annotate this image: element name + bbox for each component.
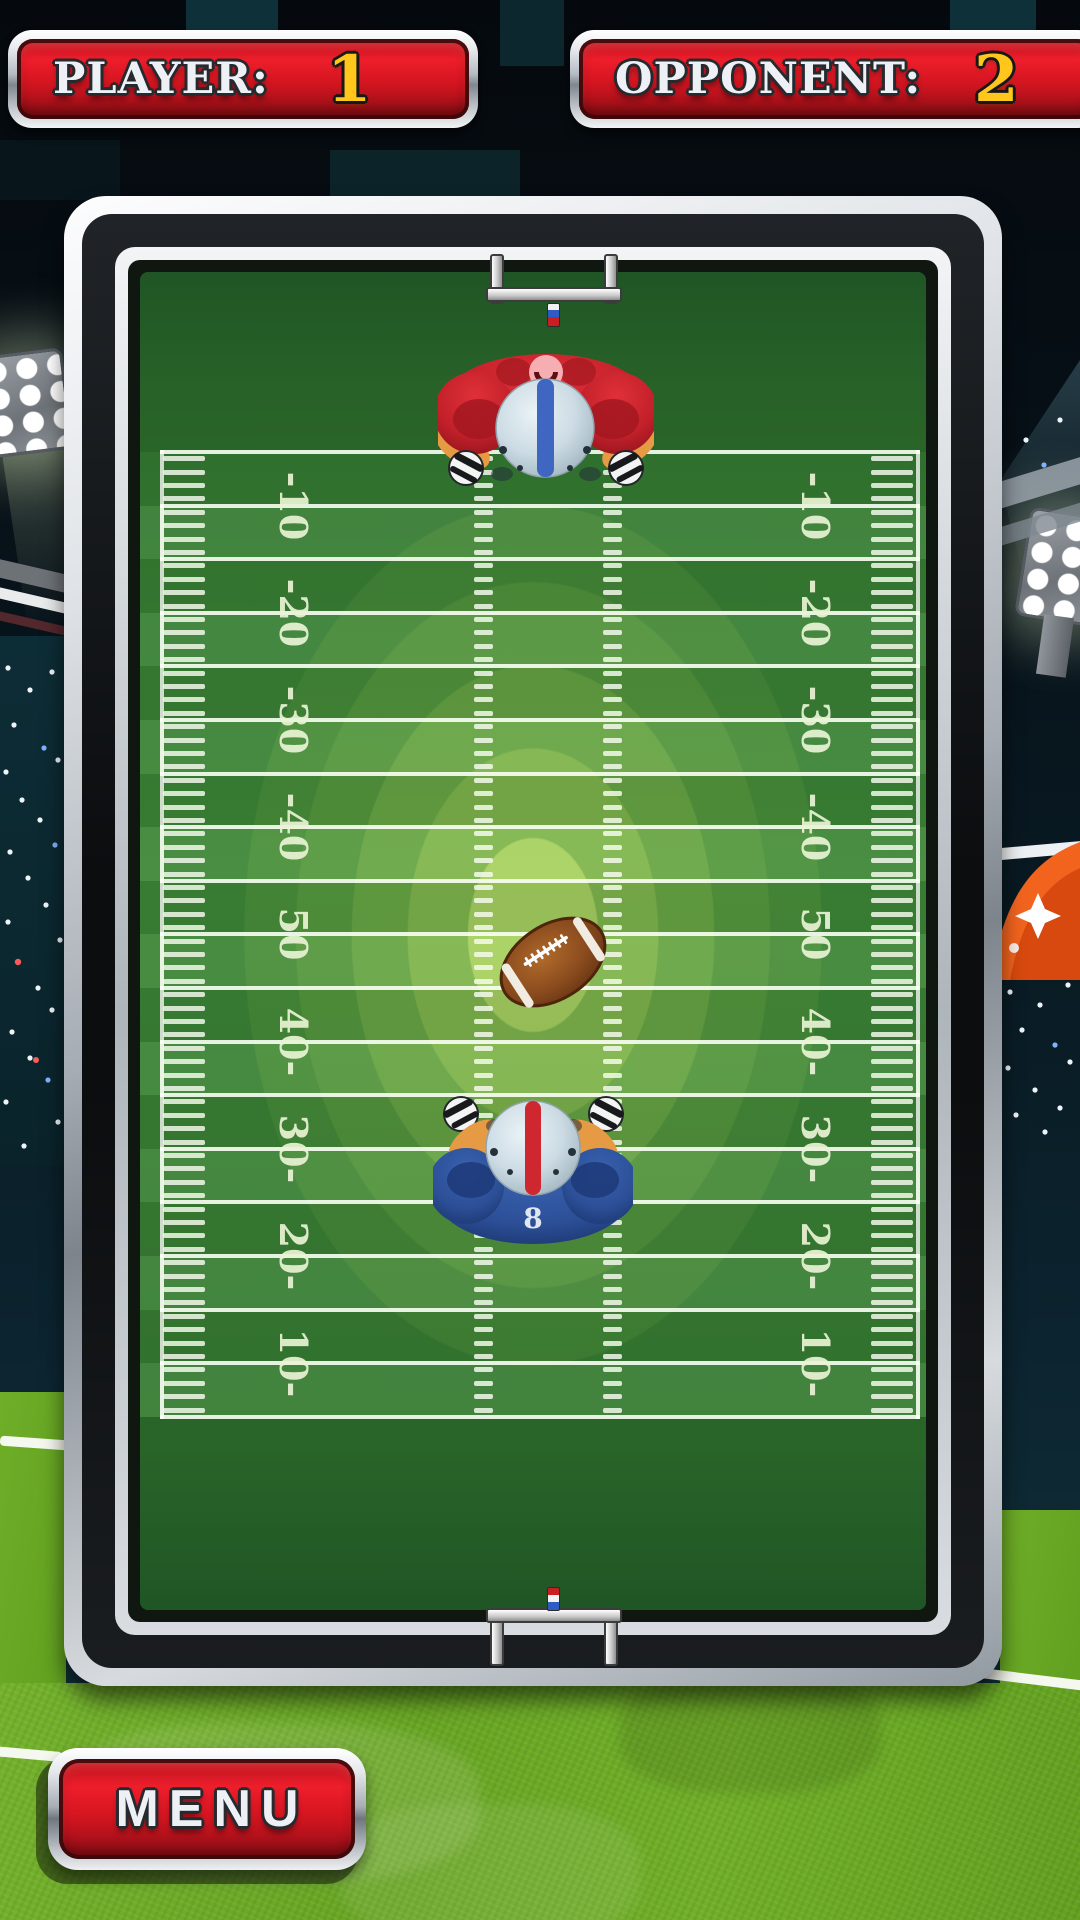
hash-mark xyxy=(603,671,622,676)
hash-mark xyxy=(163,1140,205,1145)
hash-mark xyxy=(603,590,622,595)
hash-mark xyxy=(163,1086,205,1091)
side-grass-right xyxy=(1000,1510,1080,1690)
hash-mark xyxy=(871,550,913,555)
hash-mark xyxy=(603,577,622,582)
hash-mark xyxy=(474,711,493,716)
hash-mark xyxy=(871,1381,913,1386)
hash-mark xyxy=(603,1394,622,1399)
hash-mark xyxy=(474,1394,493,1399)
hash-mark xyxy=(871,483,913,488)
hash-mark xyxy=(871,671,913,676)
hash-mark xyxy=(871,1113,913,1118)
hash-mark xyxy=(871,1153,913,1158)
hash-mark xyxy=(163,1193,205,1198)
hash-mark xyxy=(871,898,913,903)
hash-mark xyxy=(163,1220,205,1225)
hash-mark xyxy=(871,912,913,917)
hash-mark xyxy=(603,496,622,501)
hash-mark xyxy=(474,604,493,609)
hash-mark xyxy=(603,1341,622,1346)
hash-mark xyxy=(474,630,493,635)
hash-mark xyxy=(163,1300,205,1305)
hash-mark xyxy=(603,858,622,863)
hash-mark xyxy=(871,818,913,823)
hash-mark xyxy=(163,1006,205,1011)
hash-mark xyxy=(163,563,205,568)
hash-mark xyxy=(871,604,913,609)
hash-mark xyxy=(871,858,913,863)
hash-mark xyxy=(474,523,493,528)
hash-mark xyxy=(871,1233,913,1238)
hash-mark xyxy=(871,751,913,756)
hash-mark xyxy=(871,577,913,582)
hash-mark xyxy=(871,1140,913,1145)
hash-mark xyxy=(871,831,913,836)
hash-mark xyxy=(163,872,205,877)
hash-mark xyxy=(871,992,913,997)
goal-marker-bottom xyxy=(547,1587,560,1611)
hash-mark xyxy=(871,925,913,930)
hash-mark xyxy=(163,979,205,984)
player-score-value: 1 xyxy=(327,39,372,119)
hash-mark xyxy=(163,1046,205,1051)
hash-mark xyxy=(163,684,205,689)
hash-mark xyxy=(871,1408,913,1413)
hash-mark xyxy=(163,912,205,917)
hash-mark xyxy=(163,496,205,501)
hash-mark xyxy=(163,724,205,729)
hash-mark xyxy=(871,470,913,475)
hash-mark xyxy=(474,1032,493,1037)
hash-mark xyxy=(871,523,913,528)
hash-mark xyxy=(163,1166,205,1171)
hash-mark xyxy=(603,523,622,528)
hash-mark xyxy=(871,1193,913,1198)
hash-mark xyxy=(871,1166,913,1171)
menu-button[interactable]: MENU xyxy=(48,1748,366,1870)
hash-mark xyxy=(871,1314,913,1319)
hash-mark xyxy=(871,979,913,984)
hash-mark xyxy=(603,764,622,769)
hash-mark xyxy=(871,885,913,890)
hash-mark xyxy=(163,1327,205,1332)
hash-mark xyxy=(603,805,622,810)
opponent-player xyxy=(438,295,654,487)
hash-mark xyxy=(163,1367,205,1372)
hash-mark xyxy=(871,1086,913,1091)
hash-mark xyxy=(871,1327,913,1332)
hash-mark xyxy=(871,778,913,783)
opponent-label: OPPONENT: xyxy=(615,39,921,119)
hash-mark xyxy=(474,791,493,796)
hash-mark xyxy=(163,965,205,970)
stadium-banner xyxy=(500,0,564,66)
hash-mark xyxy=(163,764,205,769)
hash-mark xyxy=(474,1046,493,1051)
hash-mark xyxy=(474,1381,493,1386)
hash-mark xyxy=(603,724,622,729)
hash-mark xyxy=(871,845,913,850)
hash-mark xyxy=(871,456,913,461)
hash-mark xyxy=(163,898,205,903)
hash-mark xyxy=(163,1260,205,1265)
hash-mark xyxy=(474,563,493,568)
hash-mark xyxy=(163,590,205,595)
hash-mark xyxy=(603,563,622,568)
user-player[interactable]: 8 xyxy=(433,1082,633,1252)
hash-mark xyxy=(871,738,913,743)
hash-mark xyxy=(163,858,205,863)
hash-mark xyxy=(163,1354,205,1359)
hash-mark xyxy=(474,537,493,542)
hash-mark xyxy=(603,1300,622,1305)
hash-mark xyxy=(871,1073,913,1078)
user-jersey-number: 8 xyxy=(523,1202,542,1235)
hash-mark xyxy=(871,644,913,649)
hash-mark xyxy=(474,831,493,836)
football-ball xyxy=(486,898,622,1026)
hash-mark xyxy=(871,872,913,877)
hash-mark xyxy=(163,1341,205,1346)
hash-mark xyxy=(474,697,493,702)
hash-mark xyxy=(163,1099,205,1104)
hash-mark xyxy=(474,845,493,850)
hash-mark xyxy=(163,939,205,944)
player-score-panel-face: PLAYER: 1 xyxy=(17,39,469,119)
hash-mark xyxy=(474,724,493,729)
hash-mark xyxy=(871,537,913,542)
hash-mark xyxy=(163,1408,205,1413)
hash-mark xyxy=(871,1006,913,1011)
hash-mark xyxy=(474,510,493,515)
hash-mark xyxy=(163,1247,205,1252)
hash-mark xyxy=(163,483,205,488)
game-screen: -10-20-30-405040-30-20-10--10-20-30-4050… xyxy=(0,0,1080,1920)
hash-mark xyxy=(871,697,913,702)
hash-mark xyxy=(163,604,205,609)
hash-mark xyxy=(163,791,205,796)
hash-mark xyxy=(871,1059,913,1064)
hash-mark xyxy=(163,751,205,756)
hash-mark xyxy=(163,885,205,890)
hash-mark xyxy=(474,1260,493,1265)
hash-mark xyxy=(474,657,493,662)
hash-mark xyxy=(474,1354,493,1359)
hash-mark xyxy=(474,858,493,863)
hash-mark xyxy=(603,537,622,542)
hash-mark xyxy=(871,724,913,729)
hash-mark xyxy=(474,684,493,689)
hash-mark xyxy=(603,818,622,823)
hash-mark xyxy=(474,1367,493,1372)
hash-mark xyxy=(603,644,622,649)
hash-mark xyxy=(603,510,622,515)
hash-mark xyxy=(474,1300,493,1305)
hash-mark xyxy=(474,1408,493,1413)
background-mascot xyxy=(990,830,1080,980)
player-label: PLAYER: xyxy=(53,39,269,119)
menu-button-face: MENU xyxy=(59,1759,355,1859)
hash-mark xyxy=(474,805,493,810)
hash-mark xyxy=(603,1381,622,1386)
hash-mark xyxy=(163,577,205,582)
hash-mark xyxy=(163,1126,205,1131)
hash-mark xyxy=(163,831,205,836)
menu-button-label: MENU xyxy=(105,1779,308,1839)
hash-mark xyxy=(603,630,622,635)
hash-mark xyxy=(871,1394,913,1399)
hash-mark xyxy=(603,604,622,609)
hash-mark xyxy=(163,818,205,823)
hash-mark xyxy=(163,1381,205,1386)
hash-mark xyxy=(603,738,622,743)
hash-mark xyxy=(871,657,913,662)
opponent-score-panel-face: OPPONENT: 2 xyxy=(579,39,1080,119)
crowd-right xyxy=(1000,0,1080,1200)
hash-mark xyxy=(163,510,205,515)
hash-mark xyxy=(871,711,913,716)
hash-mark xyxy=(871,1274,913,1279)
opponent-glove-right xyxy=(607,451,645,485)
hash-mark xyxy=(871,1354,913,1359)
hash-mark xyxy=(603,1032,622,1037)
hash-mark xyxy=(163,1394,205,1399)
hash-mark xyxy=(163,644,205,649)
hash-mark xyxy=(474,496,493,501)
hash-mark xyxy=(871,791,913,796)
hash-mark xyxy=(871,1019,913,1024)
hash-mark xyxy=(163,523,205,528)
hash-mark xyxy=(474,778,493,783)
stadium-banner xyxy=(330,150,520,198)
hash-mark xyxy=(871,496,913,501)
hash-mark xyxy=(871,1341,913,1346)
hash-mark xyxy=(163,1207,205,1212)
hash-mark xyxy=(871,617,913,622)
endzone-bottom xyxy=(140,1417,926,1610)
hash-mark xyxy=(163,1180,205,1185)
hash-mark xyxy=(871,1247,913,1252)
yard-number: 10- xyxy=(271,1293,315,1433)
hash-mark xyxy=(871,1180,913,1185)
hash-mark xyxy=(871,1300,913,1305)
hash-mark xyxy=(603,1354,622,1359)
hash-mark xyxy=(603,1274,622,1279)
hash-mark xyxy=(603,1408,622,1413)
grass-patch xyxy=(620,1673,880,1793)
hash-mark xyxy=(871,590,913,595)
hash-mark xyxy=(871,1220,913,1225)
hash-mark xyxy=(163,845,205,850)
opponent-helmet-stripe xyxy=(537,379,554,477)
hash-mark xyxy=(163,630,205,635)
hash-mark xyxy=(603,1314,622,1319)
hash-mark xyxy=(474,590,493,595)
hash-mark xyxy=(163,711,205,716)
hash-mark xyxy=(474,1073,493,1078)
grass-patch xyxy=(340,1803,640,1920)
hash-mark xyxy=(163,1073,205,1078)
hash-mark xyxy=(474,644,493,649)
hash-mark xyxy=(163,778,205,783)
hash-mark xyxy=(163,1287,205,1292)
hash-mark xyxy=(603,617,622,622)
hash-mark xyxy=(474,872,493,877)
player-score-panel: PLAYER: 1 xyxy=(8,30,478,128)
hash-mark xyxy=(603,711,622,716)
hash-mark xyxy=(474,764,493,769)
hash-mark xyxy=(163,952,205,957)
opponent-score-value: 2 xyxy=(974,39,1019,119)
hash-mark xyxy=(603,1046,622,1051)
hash-mark xyxy=(163,1274,205,1279)
hash-mark xyxy=(603,550,622,555)
hash-mark xyxy=(603,872,622,877)
hash-mark xyxy=(871,630,913,635)
hash-mark xyxy=(603,751,622,756)
hash-mark xyxy=(603,657,622,662)
hash-mark xyxy=(474,1327,493,1332)
hash-mark xyxy=(603,684,622,689)
hash-mark xyxy=(163,1113,205,1118)
hash-mark xyxy=(871,1046,913,1051)
hash-mark xyxy=(474,738,493,743)
hash-mark xyxy=(474,671,493,676)
hash-mark xyxy=(474,550,493,555)
hash-mark xyxy=(871,1260,913,1265)
hash-mark xyxy=(474,1287,493,1292)
hash-mark xyxy=(163,617,205,622)
hash-mark xyxy=(163,657,205,662)
hash-mark xyxy=(474,1274,493,1279)
hash-mark xyxy=(603,831,622,836)
hash-mark xyxy=(474,818,493,823)
hash-mark xyxy=(163,1233,205,1238)
hash-mark xyxy=(603,1059,622,1064)
hash-mark xyxy=(474,577,493,582)
hash-mark xyxy=(603,885,622,890)
hash-mark xyxy=(871,563,913,568)
hash-mark xyxy=(871,965,913,970)
hash-mark xyxy=(603,1260,622,1265)
hash-mark xyxy=(871,1099,913,1104)
hash-mark xyxy=(603,1287,622,1292)
hash-mark xyxy=(474,751,493,756)
hash-mark xyxy=(474,1059,493,1064)
yard-number: 10- xyxy=(793,1293,837,1433)
hash-mark xyxy=(474,1314,493,1319)
hash-mark xyxy=(603,845,622,850)
hash-mark xyxy=(163,992,205,997)
hash-mark xyxy=(871,939,913,944)
opponent-score-panel: OPPONENT: 2 xyxy=(570,30,1080,128)
hash-mark xyxy=(603,791,622,796)
hash-mark xyxy=(163,697,205,702)
hash-mark xyxy=(163,470,205,475)
hash-mark xyxy=(163,537,205,542)
hash-mark xyxy=(163,1059,205,1064)
hash-mark xyxy=(603,1073,622,1078)
hash-mark xyxy=(603,778,622,783)
hash-mark xyxy=(163,456,205,461)
hash-mark xyxy=(871,805,913,810)
hash-mark xyxy=(163,1032,205,1037)
hash-mark xyxy=(871,684,913,689)
opponent-glove-left xyxy=(449,451,485,485)
hash-mark xyxy=(163,550,205,555)
hash-mark xyxy=(163,738,205,743)
hash-mark xyxy=(474,885,493,890)
hash-mark xyxy=(871,1287,913,1292)
hash-mark xyxy=(871,952,913,957)
hash-mark xyxy=(163,925,205,930)
hash-mark xyxy=(163,1019,205,1024)
user-helmet-stripe xyxy=(525,1101,541,1195)
hash-mark xyxy=(163,1314,205,1319)
hash-mark xyxy=(871,764,913,769)
hash-mark xyxy=(163,1153,205,1158)
hash-mark xyxy=(603,1367,622,1372)
hash-mark xyxy=(871,1032,913,1037)
crowd-left xyxy=(0,0,70,1200)
hash-mark xyxy=(871,1207,913,1212)
hash-mark xyxy=(871,1126,913,1131)
hash-mark xyxy=(603,1327,622,1332)
hash-mark xyxy=(163,671,205,676)
hash-mark xyxy=(603,697,622,702)
hash-mark xyxy=(474,617,493,622)
hash-mark xyxy=(474,1341,493,1346)
hash-mark xyxy=(871,510,913,515)
hash-mark xyxy=(871,1367,913,1372)
hash-mark xyxy=(163,805,205,810)
